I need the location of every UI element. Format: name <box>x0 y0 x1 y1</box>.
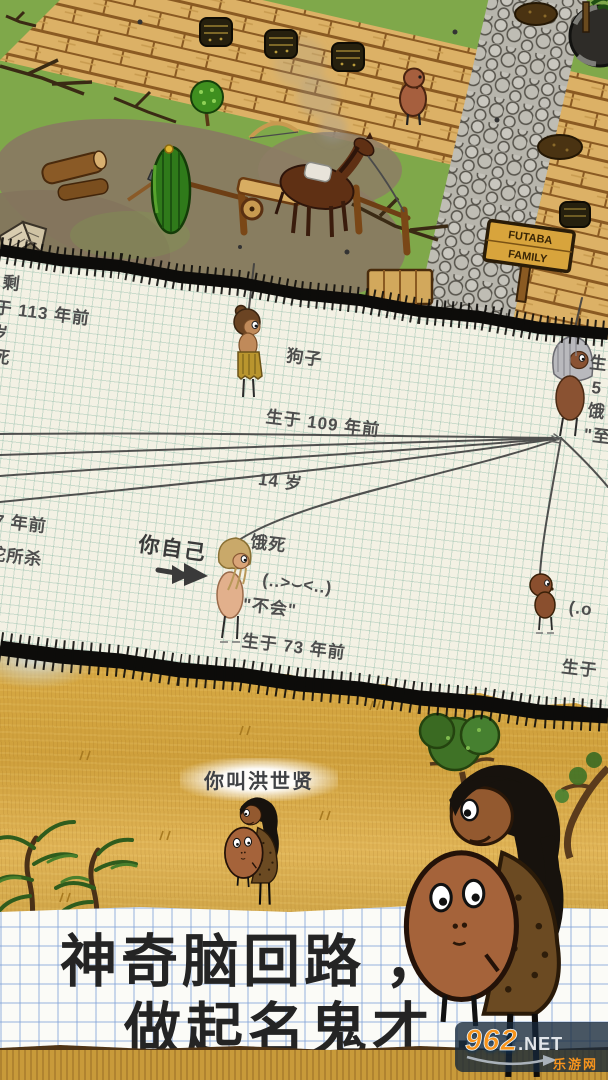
watermark: 962 .NET 乐游网 <box>455 1022 608 1072</box>
gouzi-born: 生于 109 年前 <box>265 406 382 441</box>
character-elder[interactable] <box>553 336 593 436</box>
character-child[interactable] <box>530 574 555 633</box>
you-emoticon: (..>⌣<..) <box>248 568 358 602</box>
fragment-left-top-1: 剩 <box>1 272 21 295</box>
watermark-logo: 962 .NET <box>455 1022 608 1058</box>
fragment-right-top-1: 生 <box>588 352 608 375</box>
you-arrow <box>158 563 208 586</box>
character-gouzi[interactable] <box>234 306 262 398</box>
mother-with-baby-small[interactable] <box>220 794 290 906</box>
watermark-suffix: .NET <box>518 1034 563 1055</box>
cactus[interactable] <box>152 145 190 233</box>
gouzi-age: 14 岁 <box>257 469 374 504</box>
fragment-right-top-3: 饿 <box>586 400 606 423</box>
child-emoticon: (.o <box>568 598 608 623</box>
watermark-site-name: 乐游网 <box>553 1054 598 1072</box>
gouzi-name: 狗子 <box>272 344 389 379</box>
watermark-swoosh-icon <box>463 1054 563 1070</box>
fragment-right-top-4: "至 <box>582 424 608 448</box>
screenshot-stage: FUTABA FAMILY <box>0 0 608 1080</box>
watermark-number: 962 <box>465 1024 518 1058</box>
